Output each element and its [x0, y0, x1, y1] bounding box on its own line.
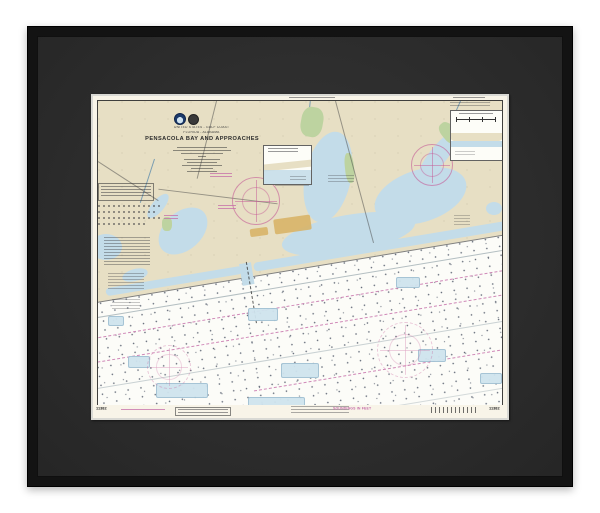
compass-rose-icon	[377, 322, 433, 378]
bottom-magenta-note	[121, 409, 165, 412]
picture-frame: UNITED STATES - GULF COAST FLORIDA - ALA…	[27, 26, 573, 487]
soundings-note: SOUNDINGS IN FEET	[333, 407, 371, 410]
region-line-1: UNITED STATES - GULF COAST	[174, 126, 229, 129]
mat-board: UNITED STATES - GULF COAST FLORIDA - ALA…	[37, 36, 563, 477]
chart-paper: UNITED STATES - GULF COAST FLORIDA - ALA…	[93, 96, 507, 418]
logarithmic-speed-scale	[98, 183, 154, 201]
magenta-note	[210, 173, 232, 179]
east-bay-river-arm	[486, 202, 502, 215]
commerce-seal-icon	[188, 114, 199, 125]
map-area: UNITED STATES - GULF COAST FLORIDA - ALA…	[98, 101, 502, 405]
chart-number-right: 11382	[489, 407, 500, 411]
notes-block	[328, 175, 354, 182]
spoil-area	[396, 277, 420, 288]
spoil-area	[480, 373, 502, 384]
magenta-note	[164, 215, 178, 221]
top-margin-note	[453, 97, 485, 100]
region-line-2: FLORIDA - ALABAMA	[174, 131, 229, 134]
legend-symbols-row	[98, 211, 156, 213]
notes-block	[112, 299, 140, 309]
notes-block	[454, 215, 470, 227]
spoil-area	[248, 308, 278, 321]
compass-rose-icon	[411, 144, 453, 186]
bottom-scale-ruler	[431, 407, 477, 413]
compass-rose-icon	[147, 345, 191, 389]
inset-map-west-continuation	[263, 145, 312, 185]
spoil-area	[108, 316, 124, 326]
chart-number: 11382	[96, 407, 107, 411]
legend-symbols-row	[98, 205, 160, 207]
notes-block	[108, 273, 144, 291]
bottom-boxed-note	[175, 407, 231, 416]
spoil-area	[248, 397, 305, 405]
inset-map-east-continuation	[450, 110, 502, 161]
top-margin-note	[289, 97, 335, 100]
inset-caption	[450, 102, 490, 108]
legend-symbols-row	[98, 217, 160, 219]
noaa-logo-icon	[174, 113, 186, 125]
framed-chart-photo: UNITED STATES - GULF COAST FLORIDA - ALA…	[0, 0, 600, 513]
title-block-notes	[162, 145, 242, 172]
legend-symbols-row	[98, 223, 148, 225]
notes-block	[104, 237, 150, 265]
chart-title: PENSACOLA BAY AND APPROACHES	[137, 135, 267, 141]
magenta-note	[218, 205, 236, 210]
spoil-area	[281, 363, 319, 378]
